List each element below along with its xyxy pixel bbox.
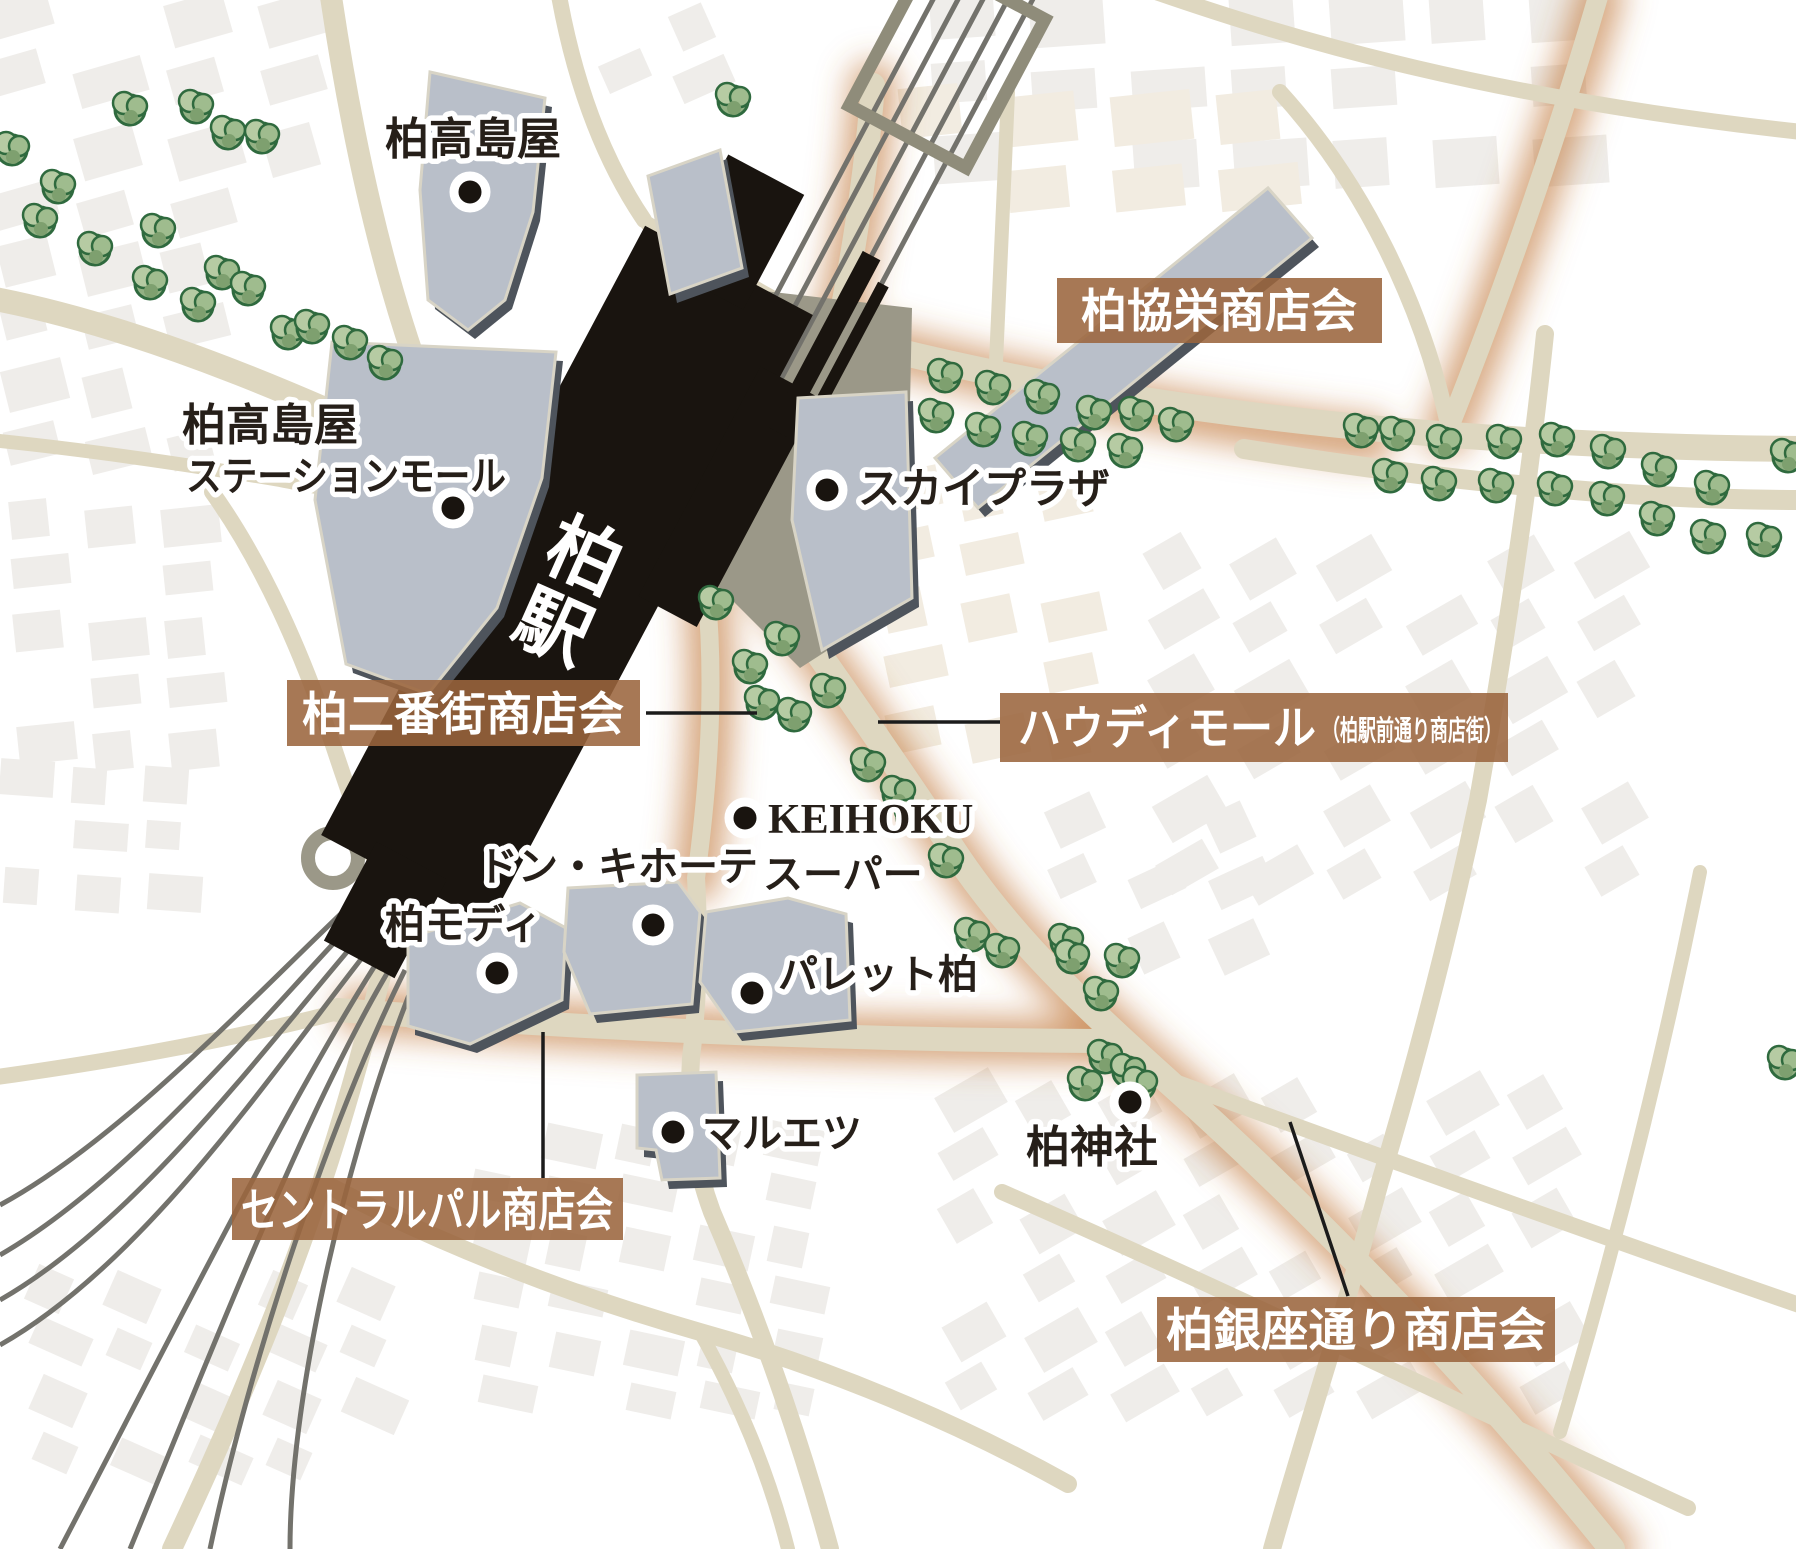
tree-icon bbox=[1695, 471, 1729, 504]
tree-icon bbox=[716, 83, 750, 116]
tree-icon bbox=[41, 170, 75, 203]
tree-icon bbox=[929, 844, 963, 877]
tree-icon bbox=[113, 92, 147, 125]
tree-icon bbox=[851, 748, 885, 781]
tree-icon bbox=[1061, 428, 1095, 461]
tree-icon bbox=[141, 214, 175, 247]
tree-icon bbox=[1427, 425, 1461, 458]
kashiwa-modi-dot bbox=[481, 957, 513, 989]
city-block bbox=[92, 730, 134, 772]
takashimaya-dot bbox=[454, 176, 486, 208]
city-block bbox=[0, 758, 55, 798]
keihoku-label-line2: スーパー bbox=[763, 852, 923, 897]
kashiwa-station-area-map: 柏 駅 柏高島屋 柏高島屋 ステーションモール スカイプラザ KEIHOKU ス… bbox=[0, 0, 1796, 1549]
tree-icon bbox=[1055, 940, 1089, 973]
nibangai-badge-label: 柏二番街商店会 bbox=[302, 689, 624, 740]
city-block bbox=[1004, 90, 1079, 147]
don-quijote-label: ドン・キホーテ bbox=[478, 844, 758, 889]
tree-icon bbox=[1380, 417, 1414, 450]
kashiwa-shrine-dot bbox=[1114, 1086, 1146, 1118]
tree-icon bbox=[765, 622, 799, 655]
city-block bbox=[11, 553, 72, 589]
building-don-quijote bbox=[564, 882, 700, 1014]
tree-icon bbox=[181, 288, 215, 321]
tree-icon bbox=[368, 346, 402, 379]
city-block bbox=[160, 504, 222, 548]
tree-icon bbox=[1768, 1046, 1796, 1079]
city-block bbox=[88, 617, 150, 661]
city-block bbox=[163, 561, 214, 596]
tree-icon bbox=[1068, 1067, 1102, 1100]
tree-icon bbox=[1105, 944, 1139, 977]
tree-icon bbox=[1159, 408, 1193, 441]
tree-icon bbox=[1747, 523, 1781, 556]
city-block bbox=[1331, 65, 1398, 109]
tree-icon bbox=[1422, 467, 1456, 500]
tree-icon bbox=[1691, 520, 1725, 553]
city-block bbox=[168, 729, 220, 772]
palette-kashiwa-label: パレット柏 bbox=[778, 952, 978, 997]
tree-icon bbox=[1119, 397, 1153, 430]
tree-icon bbox=[699, 586, 733, 619]
tree-icon bbox=[1013, 422, 1047, 455]
city-block bbox=[143, 766, 189, 805]
tree-icon bbox=[0, 132, 29, 165]
tree-icon bbox=[966, 413, 1000, 446]
city-block bbox=[1112, 163, 1186, 212]
tree-icon bbox=[1025, 380, 1059, 413]
city-block bbox=[164, 617, 206, 659]
tree-icon bbox=[333, 326, 367, 359]
tree-icon bbox=[976, 371, 1010, 404]
city-block bbox=[1216, 89, 1281, 145]
takashimaya-label: 柏高島屋 bbox=[385, 115, 561, 164]
tree-icon bbox=[1590, 482, 1624, 515]
tree-icon bbox=[733, 650, 767, 683]
city-block bbox=[145, 820, 181, 850]
central-pal-badge-label: セントラルパル商店会 bbox=[241, 1185, 613, 1236]
kyoei-badge-label: 柏協栄商店会 bbox=[1081, 286, 1357, 337]
sky-plaza-dot bbox=[811, 474, 843, 506]
tree-icon bbox=[1540, 423, 1574, 456]
kashiwa-shrine-label: 柏神社 bbox=[1026, 1123, 1158, 1172]
maruetsu-dot bbox=[657, 1116, 689, 1148]
tree-icon bbox=[179, 90, 213, 123]
tree-icon bbox=[1084, 977, 1118, 1010]
city-block bbox=[75, 875, 121, 914]
ginza-dori-badge-label: 柏銀座通り商店会 bbox=[1166, 1305, 1546, 1356]
city-block bbox=[3, 867, 39, 905]
city-block bbox=[767, 1226, 810, 1269]
palette-kashiwa-dot bbox=[736, 977, 768, 1009]
tree-icon bbox=[245, 120, 279, 153]
city-block bbox=[12, 610, 64, 653]
tree-icon bbox=[133, 266, 167, 299]
tree-icon bbox=[985, 934, 1019, 967]
tree-icon bbox=[1077, 396, 1111, 429]
tree-icon bbox=[78, 232, 112, 265]
tree-icon bbox=[295, 310, 329, 343]
city-block bbox=[8, 498, 50, 540]
howdy-mall-badge-label: ハウディモール bbox=[1018, 703, 1316, 754]
tree-icon bbox=[1344, 414, 1378, 447]
kashiwa-modi-label: 柏モディ bbox=[385, 902, 542, 947]
tree-icon bbox=[1108, 434, 1142, 467]
keihoku-dot bbox=[729, 802, 761, 834]
city-block bbox=[91, 674, 142, 709]
tree-icon bbox=[1642, 453, 1676, 486]
maruetsu-label: マルエツ bbox=[702, 1111, 862, 1156]
tree-icon bbox=[231, 272, 265, 305]
tree-icon bbox=[1538, 472, 1572, 505]
city-block bbox=[147, 873, 203, 913]
city-block bbox=[167, 672, 228, 708]
tree-icon bbox=[23, 204, 57, 237]
tree-icon bbox=[1640, 502, 1674, 535]
tree-icon bbox=[1487, 425, 1521, 458]
city-block bbox=[84, 506, 136, 549]
city-block bbox=[73, 820, 129, 852]
city-block bbox=[1428, 0, 1485, 44]
tree-icon bbox=[1373, 459, 1407, 492]
city-block bbox=[1432, 136, 1499, 188]
city-block bbox=[1006, 165, 1070, 213]
tree-icon bbox=[211, 116, 245, 149]
keihoku-label-line1: KEIHOKU bbox=[768, 797, 973, 843]
city-block bbox=[1328, 0, 1405, 46]
tree-icon bbox=[919, 399, 953, 432]
station-mall-label-line2: ステーションモール bbox=[186, 454, 506, 499]
city-block bbox=[1110, 89, 1195, 147]
station-mall-label-line1: 柏高島屋 bbox=[182, 401, 358, 450]
sky-plaza-label: スカイプラザ bbox=[858, 467, 1110, 513]
city-block bbox=[71, 767, 107, 805]
map-canvas: 柏 駅 柏高島屋 柏高島屋 ステーションモール スカイプラザ KEIHOKU ス… bbox=[0, 0, 1796, 1549]
tree-icon bbox=[1479, 469, 1513, 502]
don-quijote-dot bbox=[637, 909, 669, 941]
city-block bbox=[475, 1325, 518, 1368]
tree-icon bbox=[1591, 435, 1625, 468]
tree-icon bbox=[777, 698, 811, 731]
city-block bbox=[16, 721, 78, 765]
howdy-mall-badge-sublabel: （柏駅前通り商店街） bbox=[1322, 714, 1502, 747]
tree-icon bbox=[928, 359, 962, 392]
tree-icon bbox=[811, 674, 845, 707]
